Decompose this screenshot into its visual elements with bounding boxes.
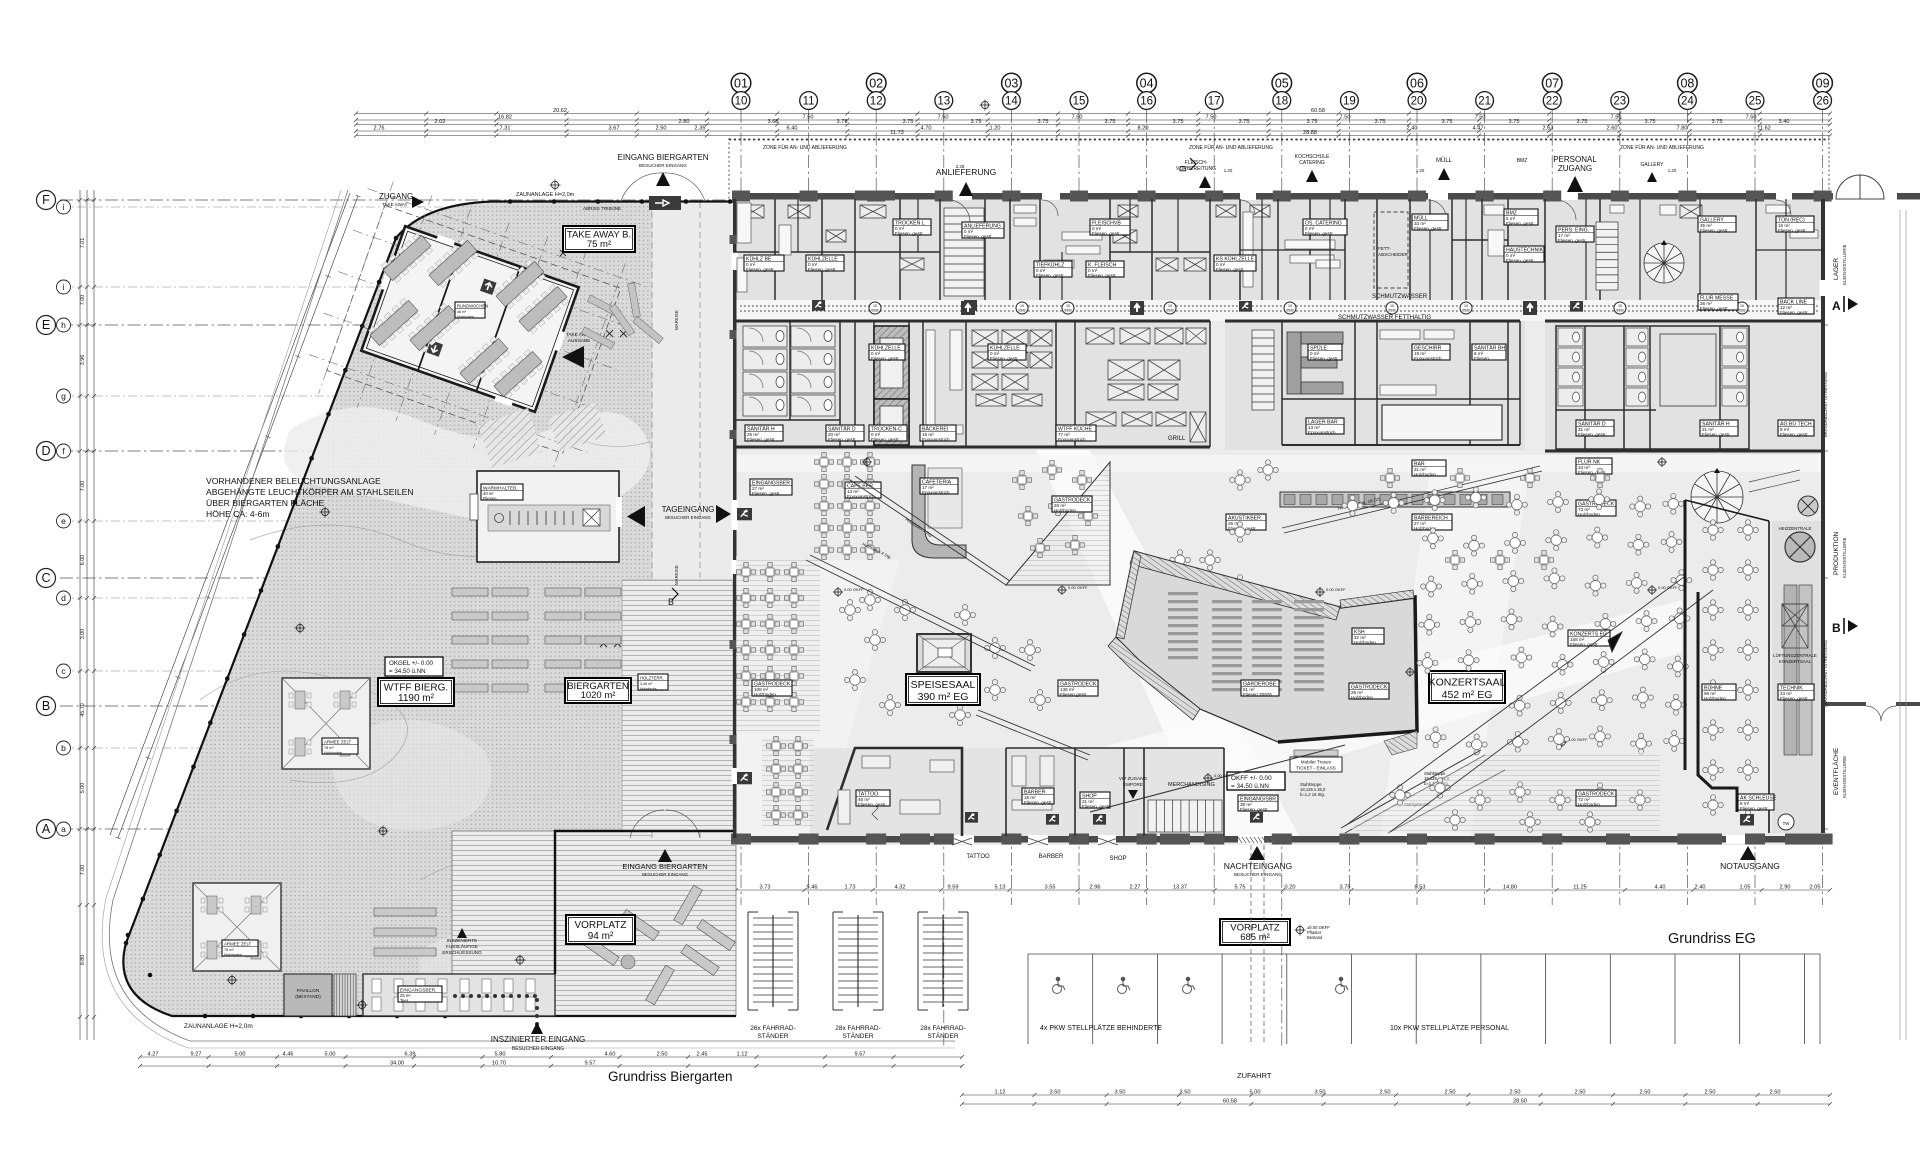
svg-text:g: g [61, 391, 66, 401]
svg-text:0.00 OKFF: 0.00 OKFF [1326, 587, 1346, 592]
svg-text:9.80: 9.80 [80, 955, 86, 966]
svg-text:3.96: 3.96 [80, 355, 86, 366]
svg-text:10: 10 [1020, 304, 1024, 308]
svg-text:01: 01 [734, 77, 748, 91]
svg-text:HÖHE CA: 4-6m: HÖHE CA: 4-6m [206, 509, 270, 519]
svg-text:3.75: 3.75 [1712, 119, 1723, 125]
svg-text:2.40: 2.40 [1695, 885, 1706, 891]
svg-text:3.75: 3.75 [1442, 119, 1453, 125]
svg-text:TAGEINGANG: TAGEINGANG [662, 505, 715, 514]
svg-text:3.65: 3.65 [768, 119, 779, 125]
svg-text:3.75: 3.75 [837, 119, 848, 125]
svg-text:Fliesen, gestr.: Fliesen, gestr. [1780, 432, 1809, 437]
svg-text:390 m² EG: 390 m² EG [918, 691, 969, 703]
svg-text:2.50: 2.50 [1705, 1090, 1716, 1096]
svg-text:BRANDABSCHNITTSTRENNUNG: BRANDABSCHNITTSTRENNUNG [1823, 372, 1828, 437]
svg-text:INSZENIERTE: INSZENIERTE [447, 938, 477, 943]
svg-text:7.50: 7.50 [1072, 115, 1083, 121]
svg-text:2.50: 2.50 [1510, 1090, 1521, 1096]
svg-text:2.27: 2.27 [1130, 885, 1141, 891]
svg-text:Holzboden: Holzboden [1354, 640, 1376, 645]
svg-text:A: A [1832, 299, 1841, 313]
svg-text:2.76: 2.76 [374, 126, 385, 132]
svg-text:AUSGABE: AUSGABE [568, 338, 590, 343]
svg-text:HOLZTERR.: HOLZTERR. [640, 675, 664, 680]
svg-text:45.70: 45.70 [80, 703, 86, 717]
svg-text:ÜBER BIERGARTEN FLÄCHE: ÜBER BIERGARTEN FLÄCHE [206, 498, 325, 508]
svg-text:7.31: 7.31 [500, 126, 511, 132]
svg-text:NACHTEINGANG: NACHTEINGANG [1224, 861, 1292, 871]
svg-text:10: 10 [1618, 304, 1622, 308]
svg-text:Fliesen, gestr.: Fliesen, gestr. [1414, 226, 1443, 231]
svg-text:3.75: 3.75 [1105, 119, 1116, 125]
svg-text:Fliesen, gestr.: Fliesen, gestr. [1088, 273, 1117, 278]
svg-text:10: 10 [873, 304, 877, 308]
svg-text:10: 10 [735, 96, 748, 108]
svg-text:4.32: 4.32 [895, 885, 906, 891]
svg-text:Holzboden: Holzboden [1414, 472, 1436, 477]
svg-text:05/B: 05/B [1286, 309, 1294, 313]
svg-text:25: 25 [1749, 96, 1762, 108]
svg-text:3.75: 3.75 [1239, 119, 1250, 125]
svg-text:Teer: Teer [400, 998, 409, 1003]
svg-text:Fliesen 70976: Fliesen 70976 [1243, 692, 1272, 697]
svg-text:Fliesen, gestr.: Fliesen, gestr. [1740, 806, 1769, 811]
svg-text:4.60: 4.60 [605, 1052, 616, 1058]
svg-text:15: 15 [1073, 96, 1086, 108]
svg-text:22: 22 [1546, 96, 1559, 108]
svg-text:Holzboden: Holzboden [1578, 512, 1600, 517]
svg-text:TICKET - EINLASS: TICKET - EINLASS [1296, 766, 1336, 771]
svg-text:7.50: 7.50 [1206, 115, 1217, 121]
svg-text:Holzboden: Holzboden [457, 315, 474, 319]
svg-text:02: 02 [869, 77, 883, 91]
svg-text:Holzboden: Holzboden [324, 751, 342, 755]
svg-text:3.75: 3.75 [1375, 119, 1386, 125]
svg-text:Fliesen, gestr.: Fliesen, gestr. [1578, 432, 1607, 437]
svg-text:16: 16 [1140, 96, 1153, 108]
svg-text:6.39: 6.39 [405, 1052, 416, 1058]
svg-text:NOTAUSGANG: NOTAUSGANG [1720, 861, 1780, 871]
svg-text:D: D [1178, 165, 1188, 172]
svg-text:KONZERTSAAL: KONZERTSAAL [1429, 677, 1506, 689]
svg-text:78 m²: 78 m² [324, 746, 334, 750]
svg-text:60.58: 60.58 [1223, 1099, 1237, 1105]
svg-text:Fliesen, gestr.: Fliesen, gestr. [808, 267, 837, 272]
svg-text:Holzboden: Holzboden [754, 692, 776, 697]
svg-text:7.50: 7.50 [938, 115, 949, 121]
svg-text:5.00: 5.00 [235, 1052, 246, 1058]
svg-text:3,46 m²: 3,46 m² [640, 682, 653, 686]
svg-text:3.75: 3.75 [1509, 119, 1520, 125]
svg-text:10: 10 [1464, 304, 1468, 308]
svg-text:GALLERY: GALLERY [1641, 162, 1665, 168]
svg-text:3.55: 3.55 [1045, 885, 1056, 891]
svg-text:VORHANDENER BELEUCHTUNGSANLAGE: VORHANDENER BELEUCHTUNGSANLAGE [206, 476, 381, 486]
svg-text:FETT-: FETT- [1378, 246, 1391, 251]
svg-text:60.58: 60.58 [1311, 108, 1325, 114]
svg-text:Fliesen, gestr.: Fliesen, gestr. [747, 437, 776, 442]
svg-text:28.88: 28.88 [1303, 130, 1317, 136]
svg-text:Holzboden: Holzboden [1351, 695, 1373, 700]
svg-text:Grundriss EG: Grundriss EG [1668, 931, 1756, 947]
svg-text:05: 05 [1275, 77, 1289, 91]
svg-text:KLEIN-DISTILLERIE: KLEIN-DISTILLERIE [1842, 537, 1847, 578]
svg-text:5.00: 5.00 [325, 1052, 336, 1058]
svg-text:0.00 OKFF: 0.00 OKFF [1568, 737, 1588, 742]
svg-text:7.50: 7.50 [803, 115, 814, 121]
svg-text:7.50: 7.50 [1746, 115, 1757, 121]
svg-text:= 34.50 ü.NN: = 34.50 ü.NN [1231, 783, 1269, 790]
svg-text:4.40: 4.40 [1655, 885, 1666, 891]
svg-text:VIP ZUGANG: VIP ZUGANG [1119, 776, 1148, 781]
svg-text:9.59: 9.59 [948, 885, 959, 891]
svg-text:i: i [63, 282, 65, 292]
svg-text:Holzboden: Holzboden [224, 953, 242, 957]
svg-text:BESUCHER EINGANG: BESUCHER EINGANG [1234, 872, 1282, 877]
svg-text:Holzboden: Holzboden [1054, 508, 1076, 513]
svg-text:05/B: 05/B [1738, 309, 1746, 313]
svg-text:C: C [41, 571, 50, 585]
svg-text:SCHMUTZWASSER: SCHMUTZWASSER [1372, 294, 1428, 300]
svg-text:04: 04 [1140, 77, 1154, 91]
svg-text:0.00 OKFF: 0.00 OKFF [1068, 585, 1088, 590]
svg-text:2.50: 2.50 [1640, 1090, 1651, 1096]
svg-text:ANLIEFERUNG: ANLIEFERUNG [936, 167, 996, 177]
svg-text:7.50: 7.50 [1611, 115, 1622, 121]
svg-text:5.00: 5.00 [1250, 1090, 1261, 1096]
svg-text:4x PKW STELLPLÄTZE BEHINDERTE: 4x PKW STELLPLÄTZE BEHINDERTE [1040, 1024, 1162, 1032]
svg-text:2.45: 2.45 [697, 1052, 708, 1058]
svg-text:05/B: 05/B [1018, 309, 1026, 313]
svg-text:2.28: 2.28 [956, 164, 965, 169]
svg-text:11.25: 11.25 [1573, 885, 1587, 891]
svg-text:Fliesen, gestr.: Fliesen, gestr. [1305, 231, 1334, 236]
svg-text:a: a [61, 824, 66, 834]
svg-text:2.90: 2.90 [1780, 885, 1791, 891]
svg-text:10: 10 [1066, 304, 1070, 308]
svg-text:3.50: 3.50 [1050, 1090, 1061, 1096]
svg-text:2.40: 2.40 [1407, 126, 1418, 132]
svg-text:24: 24 [1681, 96, 1694, 108]
svg-text:08: 08 [1680, 77, 1694, 91]
svg-text:5.13: 5.13 [995, 885, 1006, 891]
svg-text:Fliesen, gestr.: Fliesen, gestr. [871, 356, 900, 361]
svg-text:F: F [42, 193, 50, 207]
svg-text:TAKE AWAY: TAKE AWAY [382, 202, 408, 207]
svg-text:OKFF +/- 0.00: OKFF +/- 0.00 [1231, 775, 1272, 782]
svg-text:STÄNDER: STÄNDER [757, 1032, 788, 1040]
svg-text:Bestand: Bestand [1307, 935, 1323, 940]
svg-text:ZONE FÜR AN- UND ABLIEFERUNG: ZONE FÜR AN- UND ABLIEFERUNG [1620, 144, 1704, 151]
svg-text:9.57: 9.57 [855, 1052, 866, 1058]
svg-text:BESUCHER EINGANG: BESUCHER EINGANG [642, 872, 688, 877]
svg-text:OKGEL +/- 0.00: OKGEL +/- 0.00 [389, 660, 434, 667]
svg-text:e: e [61, 516, 66, 526]
svg-text:1.20: 1.20 [1224, 168, 1233, 173]
svg-text:ZONE FÜR AN- UND ABLIEFERUNG: ZONE FÜR AN- UND ABLIEFERUNG [1189, 144, 1273, 151]
svg-text:7.00: 7.00 [80, 481, 86, 492]
svg-text:05/B: 05/B [871, 309, 879, 313]
svg-text:94 m²: 94 m² [588, 931, 614, 942]
svg-text:9.57: 9.57 [585, 1061, 596, 1067]
svg-text:ABSCHEIDER: ABSCHEIDER [1378, 252, 1409, 257]
svg-text:1.20: 1.20 [1416, 168, 1425, 173]
svg-text:Fliesen, gestr.: Fliesen, gestr. [1506, 221, 1535, 226]
svg-text:16.82: 16.82 [498, 115, 512, 121]
svg-text:1.20: 1.20 [1668, 168, 1677, 173]
svg-text:Fliesen, gestr.: Fliesen, gestr. [746, 267, 775, 272]
svg-text:ZAUNANLAGE H=2,0m: ZAUNANLAGE H=2,0m [516, 192, 575, 198]
svg-text:ZUGANG: ZUGANG [379, 192, 413, 201]
svg-text:ZUGANG: ZUGANG [1558, 164, 1592, 173]
svg-text:A: A [42, 822, 51, 836]
svg-text:2.50: 2.50 [1380, 1090, 1391, 1096]
svg-text:2.63: 2.63 [1543, 126, 1554, 132]
svg-text:LÜFTUNGZENTRALE: LÜFTUNGZENTRALE [1773, 653, 1817, 658]
svg-text:2.96: 2.96 [1090, 885, 1101, 891]
svg-text:2.50: 2.50 [1445, 1090, 1456, 1096]
svg-text:MARKISE: MARKISE [674, 565, 679, 585]
svg-text:Grundriss Biergarten: Grundriss Biergarten [608, 1069, 733, 1084]
svg-text:Fliesen, gestr.: Fliesen, gestr. [1036, 273, 1065, 278]
svg-text:7.00: 7.00 [80, 865, 86, 876]
svg-text:ZAUNANLAGE H=2,0m: ZAUNANLAGE H=2,0m [184, 1023, 253, 1030]
svg-text:Fliesen: Fliesen [1474, 356, 1489, 361]
svg-text:14.80: 14.80 [1503, 885, 1517, 891]
svg-text:BRANDABSCHNITTSTRENNUNG: BRANDABSCHNITTSTRENNUNG [1823, 640, 1828, 705]
svg-text:10: 10 [1168, 304, 1172, 308]
svg-text:2.05: 2.05 [1810, 885, 1821, 891]
svg-text:3.50: 3.50 [1315, 1090, 1326, 1096]
svg-text:(BESTAND): (BESTAND) [295, 994, 321, 1000]
svg-text:ZUFAHRT: ZUFAHRT [1237, 1071, 1272, 1080]
svg-text:11.62: 11.62 [1757, 126, 1771, 132]
svg-text:14: 14 [1005, 96, 1018, 108]
svg-text:2.50: 2.50 [656, 126, 667, 132]
svg-text:ZONE FÜR AN- UND ABLIEFERUNG: ZONE FÜR AN- UND ABLIEFERUNG [763, 144, 847, 151]
svg-text:B: B [1832, 621, 1841, 635]
svg-text:ARMEE ZELT: ARMEE ZELT [224, 941, 252, 946]
svg-text:Fliesen: Fliesen [483, 496, 497, 501]
svg-text:3.75: 3.75 [903, 119, 914, 125]
svg-text:2.50: 2.50 [1575, 1090, 1586, 1096]
svg-text:RUNDWOCHEN: RUNDWOCHEN [457, 303, 488, 308]
svg-text:Fliesen, gestr.: Fliesen, gestr. [895, 231, 924, 236]
svg-text:Fliesen, gestr.: Fliesen, gestr. [828, 437, 857, 442]
svg-text:Fliesen, gestr.: Fliesen, gestr. [1092, 231, 1121, 236]
svg-text:i: i [63, 202, 65, 212]
svg-text:8.53: 8.53 [1415, 885, 1426, 891]
svg-text:5.80: 5.80 [495, 1052, 506, 1058]
svg-text:1020 m²: 1020 m² [581, 690, 616, 701]
svg-text:Holzboden: Holzboden [1578, 802, 1600, 807]
svg-text:Fliesen, gestr.: Fliesen, gestr. [858, 802, 887, 807]
svg-text:10: 10 [1390, 304, 1394, 308]
svg-text:3.75: 3.75 [1340, 885, 1351, 891]
svg-text:1.20: 1.20 [990, 126, 1001, 132]
svg-text:34.00: 34.00 [390, 1061, 404, 1067]
svg-text:1190 m²: 1190 m² [398, 693, 435, 704]
svg-text:3.50: 3.50 [1180, 1090, 1191, 1096]
svg-text:b=1,2 16 Stg.: b=1,2 16 Stg. [1300, 792, 1325, 797]
svg-text:EINGANG BIERGARTEN: EINGANG BIERGARTEN [622, 862, 707, 871]
svg-text:Fliesen, gestr.: Fliesen, gestr. [1082, 804, 1111, 809]
svg-text:2.35: 2.35 [695, 126, 706, 132]
svg-text:4.47: 4.47 [1473, 126, 1484, 132]
svg-text:Fliesen, gestr.: Fliesen, gestr. [1216, 267, 1245, 272]
svg-text:MARKISE: MARKISE [674, 310, 679, 330]
svg-text:PAVILLON: PAVILLON [297, 988, 320, 994]
svg-text:75 m²: 75 m² [587, 239, 611, 250]
svg-text:KLEIN-DESTILLERIE: KLEIN-DESTILLERIE [1842, 756, 1847, 798]
svg-text:1.12: 1.12 [737, 1052, 748, 1058]
svg-text:Fliesen, gestr.: Fliesen, gestr. [964, 234, 993, 239]
svg-text:23: 23 [1613, 96, 1626, 108]
svg-text:Epoxianstrich: Epoxianstrich [1414, 356, 1442, 361]
svg-text:Fliesen, gestr.: Fliesen, gestr. [1310, 356, 1339, 361]
svg-text:B: B [42, 699, 50, 713]
svg-text:1.73: 1.73 [845, 885, 856, 891]
svg-text:E: E [42, 318, 50, 332]
svg-text:CATERING: CATERING [1299, 160, 1325, 166]
svg-text:ABGEHÄNGTE LEUCHTKÖRPER AM STA: ABGEHÄNGTE LEUCHTKÖRPER AM STAHLSEILEN [206, 487, 414, 497]
svg-text:Epoxianstrich: Epoxianstrich [922, 437, 950, 442]
svg-text:ERSCHLIESSUNG: ERSCHLIESSUNG [442, 950, 482, 955]
svg-text:78 m²: 78 m² [224, 948, 234, 952]
svg-text:13: 13 [937, 96, 950, 108]
svg-text:BESUCHER EINGANG: BESUCHER EINGANG [665, 515, 711, 520]
svg-text:10.70: 10.70 [492, 1061, 506, 1067]
svg-text:Epoxianstrich: Epoxianstrich [1308, 430, 1336, 435]
svg-text:3.75: 3.75 [1307, 119, 1318, 125]
svg-text:Fliesen, gestr.: Fliesen, gestr. [1702, 432, 1731, 437]
svg-text:3.75: 3.75 [971, 119, 982, 125]
svg-text:EMPORE: EMPORE [1123, 782, 1143, 787]
svg-text:6.40: 6.40 [787, 126, 798, 132]
svg-text:5.46: 5.46 [807, 885, 818, 891]
svg-text:3.40: 3.40 [1779, 119, 1790, 125]
svg-text:17: 17 [1208, 96, 1221, 108]
svg-text:Fliesen gestr.: Fliesen gestr. [1060, 692, 1087, 697]
svg-text:ARMEE ZELT: ARMEE ZELT [324, 739, 352, 744]
svg-text:20.62: 20.62 [553, 108, 567, 114]
svg-text:10: 10 [1288, 304, 1292, 308]
svg-text:= 34.50 ü.NN: = 34.50 ü.NN [389, 668, 426, 675]
svg-text:h: h [61, 320, 66, 330]
svg-text:8.20: 8.20 [1138, 126, 1149, 132]
svg-text:4.27: 4.27 [148, 1052, 159, 1058]
svg-text:10: 10 [1740, 304, 1744, 308]
svg-text:05/B: 05/B [1064, 309, 1072, 313]
svg-text:3.50: 3.50 [1115, 1090, 1126, 1096]
svg-text:Epoxianstrich: Epoxianstrich [1058, 437, 1086, 442]
svg-text:7.50: 7.50 [1475, 115, 1486, 121]
svg-text:FUSSLÄUFIGE: FUSSLÄUFIGE [446, 943, 478, 949]
svg-text:19: 19 [1343, 96, 1356, 108]
svg-text:3.75: 3.75 [1577, 119, 1588, 125]
svg-text:13.37: 13.37 [1173, 885, 1187, 891]
svg-text:11: 11 [803, 96, 815, 108]
svg-text:2.60: 2.60 [1607, 126, 1618, 132]
svg-text:VORPLATZ: VORPLATZ [574, 920, 626, 931]
svg-text:EVENTFLÄCHE: EVENTFLÄCHE [1832, 747, 1840, 795]
svg-text:Fliesen, gestr.: Fliesen, gestr. [1700, 228, 1729, 233]
svg-text:05/B: 05/B [1388, 309, 1396, 313]
svg-text:7.00: 7.00 [80, 295, 86, 306]
svg-text:05/B: 05/B [1462, 309, 1470, 313]
svg-text:4.70: 4.70 [921, 126, 932, 132]
svg-text:2.50: 2.50 [1770, 1090, 1781, 1096]
svg-text:KONZERTSAAL: KONZERTSAAL [1779, 659, 1812, 664]
svg-text:28x FAHRRAD-: 28x FAHRRAD- [835, 1025, 881, 1032]
svg-text:3.67: 3.67 [609, 126, 620, 132]
svg-text:BMZ: BMZ [1517, 158, 1528, 164]
svg-text:26x FAHRRAD-: 26x FAHRRAD- [750, 1025, 796, 1032]
svg-text:GRILL: GRILL [1168, 436, 1186, 442]
svg-text:9.27: 9.27 [191, 1052, 202, 1058]
svg-text:21: 21 [1478, 96, 1491, 108]
svg-text:BESUCHER EINGANG: BESUCHER EINGANG [512, 1046, 564, 1052]
svg-text:452 m² EG: 452 m² EG [1442, 689, 1493, 701]
svg-text:Fliesen, gestr.: Fliesen, gestr. [1506, 258, 1535, 263]
svg-text:STÄNDER: STÄNDER [927, 1032, 958, 1040]
svg-text:Fliesen, gestr.: Fliesen, gestr. [1780, 310, 1809, 315]
svg-text:11.73: 11.73 [890, 130, 904, 136]
svg-text:10x PKW STELLPLÄTZE PERSONAL: 10x PKW STELLPLÄTZE PERSONAL [1390, 1024, 1509, 1032]
svg-text:1.05: 1.05 [1740, 885, 1751, 891]
svg-text:3.75: 3.75 [1173, 119, 1184, 125]
svg-text:Fliesen, gestr.: Fliesen, gestr. [990, 356, 1019, 361]
svg-text:MÜLL: MÜLL [1436, 157, 1453, 164]
svg-text:20: 20 [1411, 96, 1424, 108]
svg-text:Fliesen, gestr.: Fliesen, gestr. [1240, 807, 1269, 812]
svg-text:6.00: 6.00 [80, 555, 86, 566]
svg-text:WTFF BIERG.: WTFF BIERG. [384, 683, 448, 694]
svg-text:EINGANG BIERGARTEN: EINGANG BIERGARTEN [618, 153, 709, 162]
svg-text:2.50: 2.50 [657, 1052, 668, 1058]
svg-text:Holzboden: Holzboden [1704, 696, 1726, 701]
svg-text:Fliesen, gestr.: Fliesen, gestr. [1024, 800, 1053, 805]
svg-text:b: b [61, 743, 66, 753]
svg-text:7.80: 7.80 [1677, 126, 1688, 132]
svg-text:2.80: 2.80 [679, 119, 690, 125]
svg-text:28.50: 28.50 [1513, 1099, 1527, 1105]
svg-text:1.12: 1.12 [995, 1090, 1006, 1096]
svg-text:5.00: 5.00 [80, 783, 86, 794]
svg-text:Fliesen, gestr.: Fliesen, gestr. [1700, 306, 1729, 311]
svg-text:LAGER: LAGER [1833, 258, 1840, 280]
svg-text:Epoxianstrich: Epoxianstrich [847, 494, 875, 499]
svg-text:Fliesen, gestr.: Fliesen, gestr. [1780, 696, 1809, 701]
svg-text:5.75: 5.75 [1235, 885, 1246, 891]
svg-text:SPEISESAAL: SPEISESAAL [911, 679, 976, 691]
svg-text:Mobiler Tresen: Mobiler Tresen [1301, 760, 1332, 765]
svg-text:TW: TW [1783, 821, 1791, 826]
svg-text:BESUCHER EINGANG: BESUCHER EINGANG [639, 163, 687, 168]
svg-text:7.01: 7.01 [80, 238, 86, 249]
svg-text:3.75: 3.75 [1645, 119, 1656, 125]
svg-text:26: 26 [1816, 96, 1829, 108]
svg-text:D: D [41, 444, 50, 458]
svg-text:18: 18 [1275, 96, 1288, 108]
svg-text:Fliesen, gestr.: Fliesen, gestr. [1778, 228, 1807, 233]
svg-text:4.46: 4.46 [283, 1052, 294, 1058]
svg-text:3.00: 3.00 [80, 629, 86, 640]
svg-text:48 m²: 48 m² [457, 310, 467, 314]
svg-text:09: 09 [1816, 77, 1830, 91]
svg-text:03: 03 [1004, 77, 1018, 91]
